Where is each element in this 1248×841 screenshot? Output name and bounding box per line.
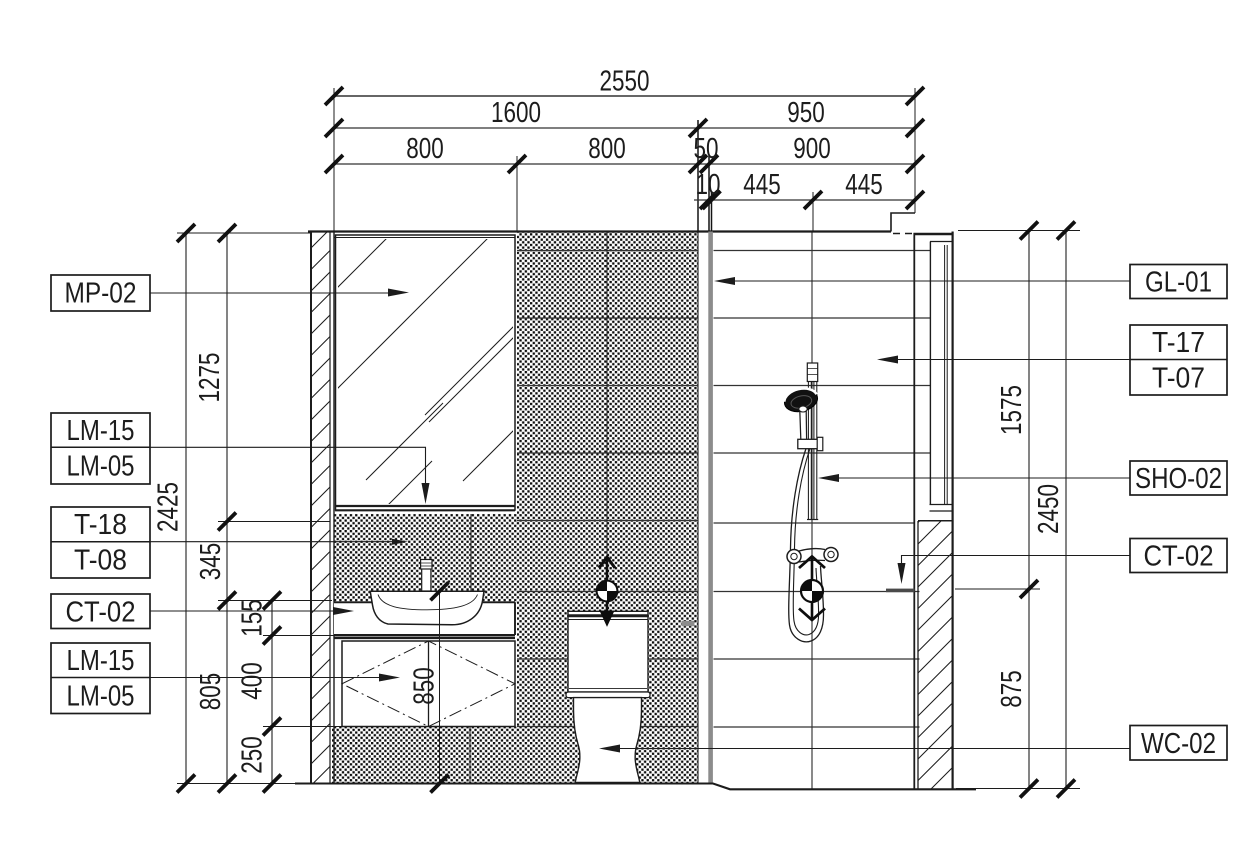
svg-text:2450: 2450	[1033, 484, 1065, 534]
svg-text:1600: 1600	[491, 97, 541, 129]
svg-text:50: 50	[694, 133, 719, 165]
svg-text:GL-01: GL-01	[1145, 267, 1212, 299]
svg-text:445: 445	[743, 169, 781, 201]
svg-text:10: 10	[696, 169, 721, 201]
svg-text:400: 400	[237, 662, 269, 700]
svg-text:900: 900	[793, 133, 831, 165]
svg-text:2550: 2550	[600, 66, 650, 98]
svg-text:LM-15: LM-15	[67, 415, 135, 447]
svg-text:800: 800	[588, 133, 626, 165]
svg-text:T-18: T-18	[74, 509, 127, 541]
svg-text:875: 875	[996, 670, 1028, 708]
svg-text:CT-02: CT-02	[1144, 541, 1214, 573]
svg-text:LM-05: LM-05	[67, 681, 135, 713]
svg-text:800: 800	[406, 133, 444, 165]
svg-text:1575: 1575	[996, 385, 1028, 435]
svg-text:950: 950	[787, 97, 825, 129]
svg-text:MP-02: MP-02	[65, 278, 137, 310]
svg-text:445: 445	[845, 169, 883, 201]
svg-text:2425: 2425	[153, 482, 185, 532]
svg-text:805: 805	[195, 673, 227, 711]
svg-text:CT-02: CT-02	[66, 597, 136, 629]
svg-text:WC-02: WC-02	[1141, 728, 1216, 760]
svg-text:SHO-02: SHO-02	[1135, 463, 1222, 495]
svg-text:1275: 1275	[194, 353, 226, 403]
svg-text:LM-05: LM-05	[67, 451, 135, 483]
svg-text:345: 345	[195, 543, 227, 581]
svg-text:155: 155	[237, 599, 269, 637]
svg-text:850: 850	[409, 667, 441, 705]
svg-text:T-08: T-08	[74, 545, 127, 577]
svg-text:T-07: T-07	[1152, 363, 1205, 395]
svg-text:T-17: T-17	[1152, 327, 1205, 359]
svg-text:250: 250	[237, 736, 269, 774]
svg-text:LM-15: LM-15	[67, 645, 135, 677]
